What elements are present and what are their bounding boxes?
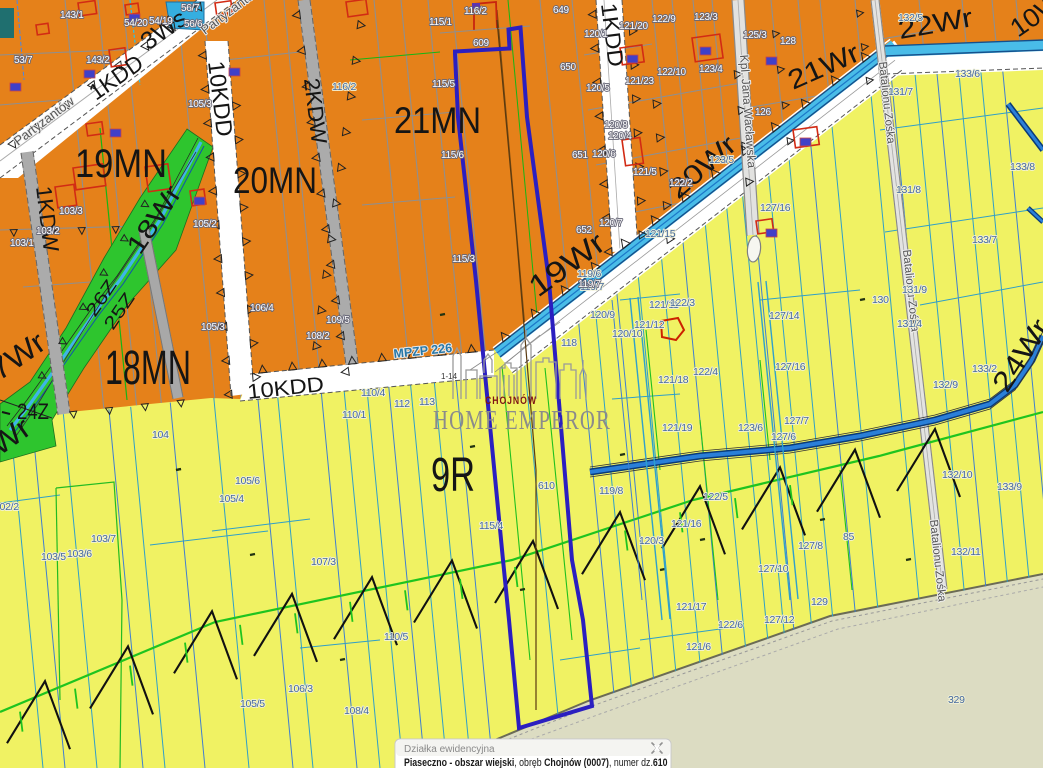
svg-text:9R: 9R (431, 449, 475, 502)
svg-text:105/3: 105/3 (188, 99, 212, 110)
svg-text:120/1: 120/1 (584, 29, 608, 40)
svg-text:128: 128 (780, 36, 797, 47)
svg-text:650: 650 (560, 62, 577, 73)
svg-text:115/5: 115/5 (432, 79, 456, 90)
svg-text:54/19: 54/19 (149, 16, 173, 27)
svg-text:122/5: 122/5 (703, 491, 728, 503)
svg-text:108/4: 108/4 (344, 705, 369, 717)
svg-text:53/7: 53/7 (14, 55, 33, 66)
svg-text:120/7: 120/7 (599, 218, 623, 229)
svg-text:116/2: 116/2 (332, 81, 356, 93)
svg-text:133/8: 133/8 (1010, 161, 1035, 173)
svg-text:109/5: 109/5 (326, 315, 350, 326)
svg-text:106/4: 106/4 (250, 303, 274, 314)
svg-text:121/23: 121/23 (625, 76, 655, 87)
svg-text:107/3: 107/3 (311, 556, 336, 568)
svg-text:123/5: 123/5 (709, 154, 734, 166)
svg-text:105/6: 105/6 (235, 475, 260, 487)
svg-text:21MN: 21MN (394, 100, 481, 141)
svg-text:115/6: 115/6 (441, 150, 465, 161)
svg-text:HOME EMPEROR: HOME EMPEROR (433, 405, 611, 435)
svg-text:Działka ewidencyjna: Działka ewidencyjna (404, 744, 495, 755)
svg-text:133/7: 133/7 (972, 234, 997, 246)
svg-text:132/11: 132/11 (951, 546, 981, 558)
svg-text:103/6: 103/6 (67, 548, 92, 560)
svg-text:609: 609 (473, 38, 490, 49)
svg-text:131/7: 131/7 (888, 86, 913, 98)
svg-text:19MN: 19MN (75, 142, 167, 186)
svg-text:121/5: 121/5 (633, 167, 657, 178)
svg-text:125/3: 125/3 (743, 30, 767, 41)
svg-text:103/3: 103/3 (59, 206, 83, 217)
svg-text:115/3: 115/3 (452, 254, 476, 265)
svg-text:123/4: 123/4 (699, 64, 723, 75)
svg-text:122/4: 122/4 (693, 366, 718, 378)
svg-text:1-14: 1-14 (441, 372, 458, 381)
svg-text:130: 130 (872, 294, 889, 306)
svg-text:122/9: 122/9 (652, 14, 676, 25)
svg-text:20MN: 20MN (233, 160, 317, 201)
svg-text:121/19: 121/19 (662, 422, 693, 434)
svg-text:651: 651 (572, 150, 589, 161)
svg-text:121/16: 121/16 (671, 518, 702, 530)
svg-text:132/5: 132/5 (898, 12, 923, 24)
svg-text:103/2: 103/2 (36, 226, 60, 237)
svg-text:127/12: 127/12 (764, 614, 795, 626)
svg-text:120/8: 120/8 (604, 120, 628, 131)
svg-text:143/2: 143/2 (86, 55, 110, 66)
svg-text:119/7: 119/7 (578, 279, 602, 290)
svg-text:18MN: 18MN (105, 342, 191, 395)
svg-text:122/10: 122/10 (657, 67, 687, 78)
svg-text:54/20: 54/20 (124, 18, 148, 29)
svg-text:105/2: 105/2 (193, 219, 217, 230)
svg-text:115/1: 115/1 (429, 17, 453, 28)
svg-text:131/8: 131/8 (896, 184, 921, 196)
svg-text:143/1: 143/1 (60, 10, 84, 21)
svg-text:127/14: 127/14 (769, 310, 800, 322)
svg-text:56/7: 56/7 (181, 3, 200, 14)
svg-text:120/5: 120/5 (586, 83, 610, 94)
svg-text:121/17: 121/17 (676, 601, 707, 613)
svg-text:127/8: 127/8 (798, 540, 823, 552)
svg-text:115/4: 115/4 (479, 520, 503, 532)
svg-text:105/4: 105/4 (219, 493, 244, 505)
svg-text:103/1: 103/1 (10, 238, 34, 249)
svg-text:105/5: 105/5 (240, 698, 265, 710)
svg-text:110/1: 110/1 (342, 409, 366, 421)
svg-text:652: 652 (576, 225, 593, 236)
svg-text:132/10: 132/10 (942, 469, 973, 481)
svg-text:649: 649 (553, 5, 570, 16)
svg-text:127/6: 127/6 (771, 431, 796, 443)
svg-text:131/4: 131/4 (897, 318, 922, 330)
svg-text:133/6: 133/6 (955, 68, 980, 80)
svg-text:110/4: 110/4 (361, 387, 385, 399)
svg-text:118: 118 (561, 337, 577, 349)
svg-text:120/3: 120/3 (639, 535, 664, 547)
svg-text:133/9: 133/9 (997, 481, 1022, 493)
svg-text:85: 85 (843, 531, 855, 543)
svg-text:122/6: 122/6 (718, 619, 743, 631)
svg-text:127/7: 127/7 (784, 415, 809, 427)
svg-text:103/7: 103/7 (91, 533, 116, 545)
svg-text:122/3: 122/3 (670, 297, 695, 309)
svg-text:113: 113 (419, 396, 435, 408)
svg-text:108/2: 108/2 (306, 331, 330, 342)
svg-text:120/9: 120/9 (590, 309, 615, 321)
svg-text:121/15: 121/15 (645, 228, 676, 240)
svg-text:132/9: 132/9 (933, 379, 958, 391)
svg-text:103/5: 103/5 (41, 551, 66, 563)
svg-text:127/16: 127/16 (775, 361, 806, 373)
svg-text:102/2: 102/2 (0, 501, 19, 513)
svg-text:121/6: 121/6 (686, 641, 711, 653)
svg-text:129: 129 (811, 596, 828, 608)
svg-text:105/3: 105/3 (201, 322, 225, 333)
svg-text:131/9: 131/9 (902, 284, 927, 296)
svg-text:121/12: 121/12 (634, 319, 665, 331)
svg-text:127/10: 127/10 (758, 563, 789, 575)
svg-text:127/16: 127/16 (760, 202, 791, 214)
svg-text:110/5: 110/5 (384, 631, 408, 643)
svg-text:123/6: 123/6 (738, 422, 763, 434)
svg-text:56/6: 56/6 (184, 19, 203, 30)
svg-text:121/18: 121/18 (658, 374, 689, 386)
svg-text:126: 126 (755, 107, 772, 118)
svg-text:116/2: 116/2 (464, 6, 488, 17)
svg-text:120/6: 120/6 (592, 149, 616, 160)
svg-text:329: 329 (948, 694, 965, 706)
svg-text:121/20: 121/20 (619, 21, 649, 32)
svg-text:120/4: 120/4 (608, 131, 632, 142)
svg-text:133/2: 133/2 (972, 363, 997, 375)
svg-text:122/2: 122/2 (669, 178, 693, 189)
svg-text:106/3: 106/3 (288, 683, 313, 695)
svg-text:610: 610 (538, 480, 555, 492)
svg-text:112: 112 (394, 398, 410, 410)
svg-text:123/3: 123/3 (694, 12, 718, 23)
svg-text:Piaseczno - obszar wiejski, ob: Piaseczno - obszar wiejski, obręb Chojnó… (404, 757, 668, 768)
svg-text:104: 104 (152, 429, 169, 441)
svg-text:119/8: 119/8 (599, 485, 623, 497)
